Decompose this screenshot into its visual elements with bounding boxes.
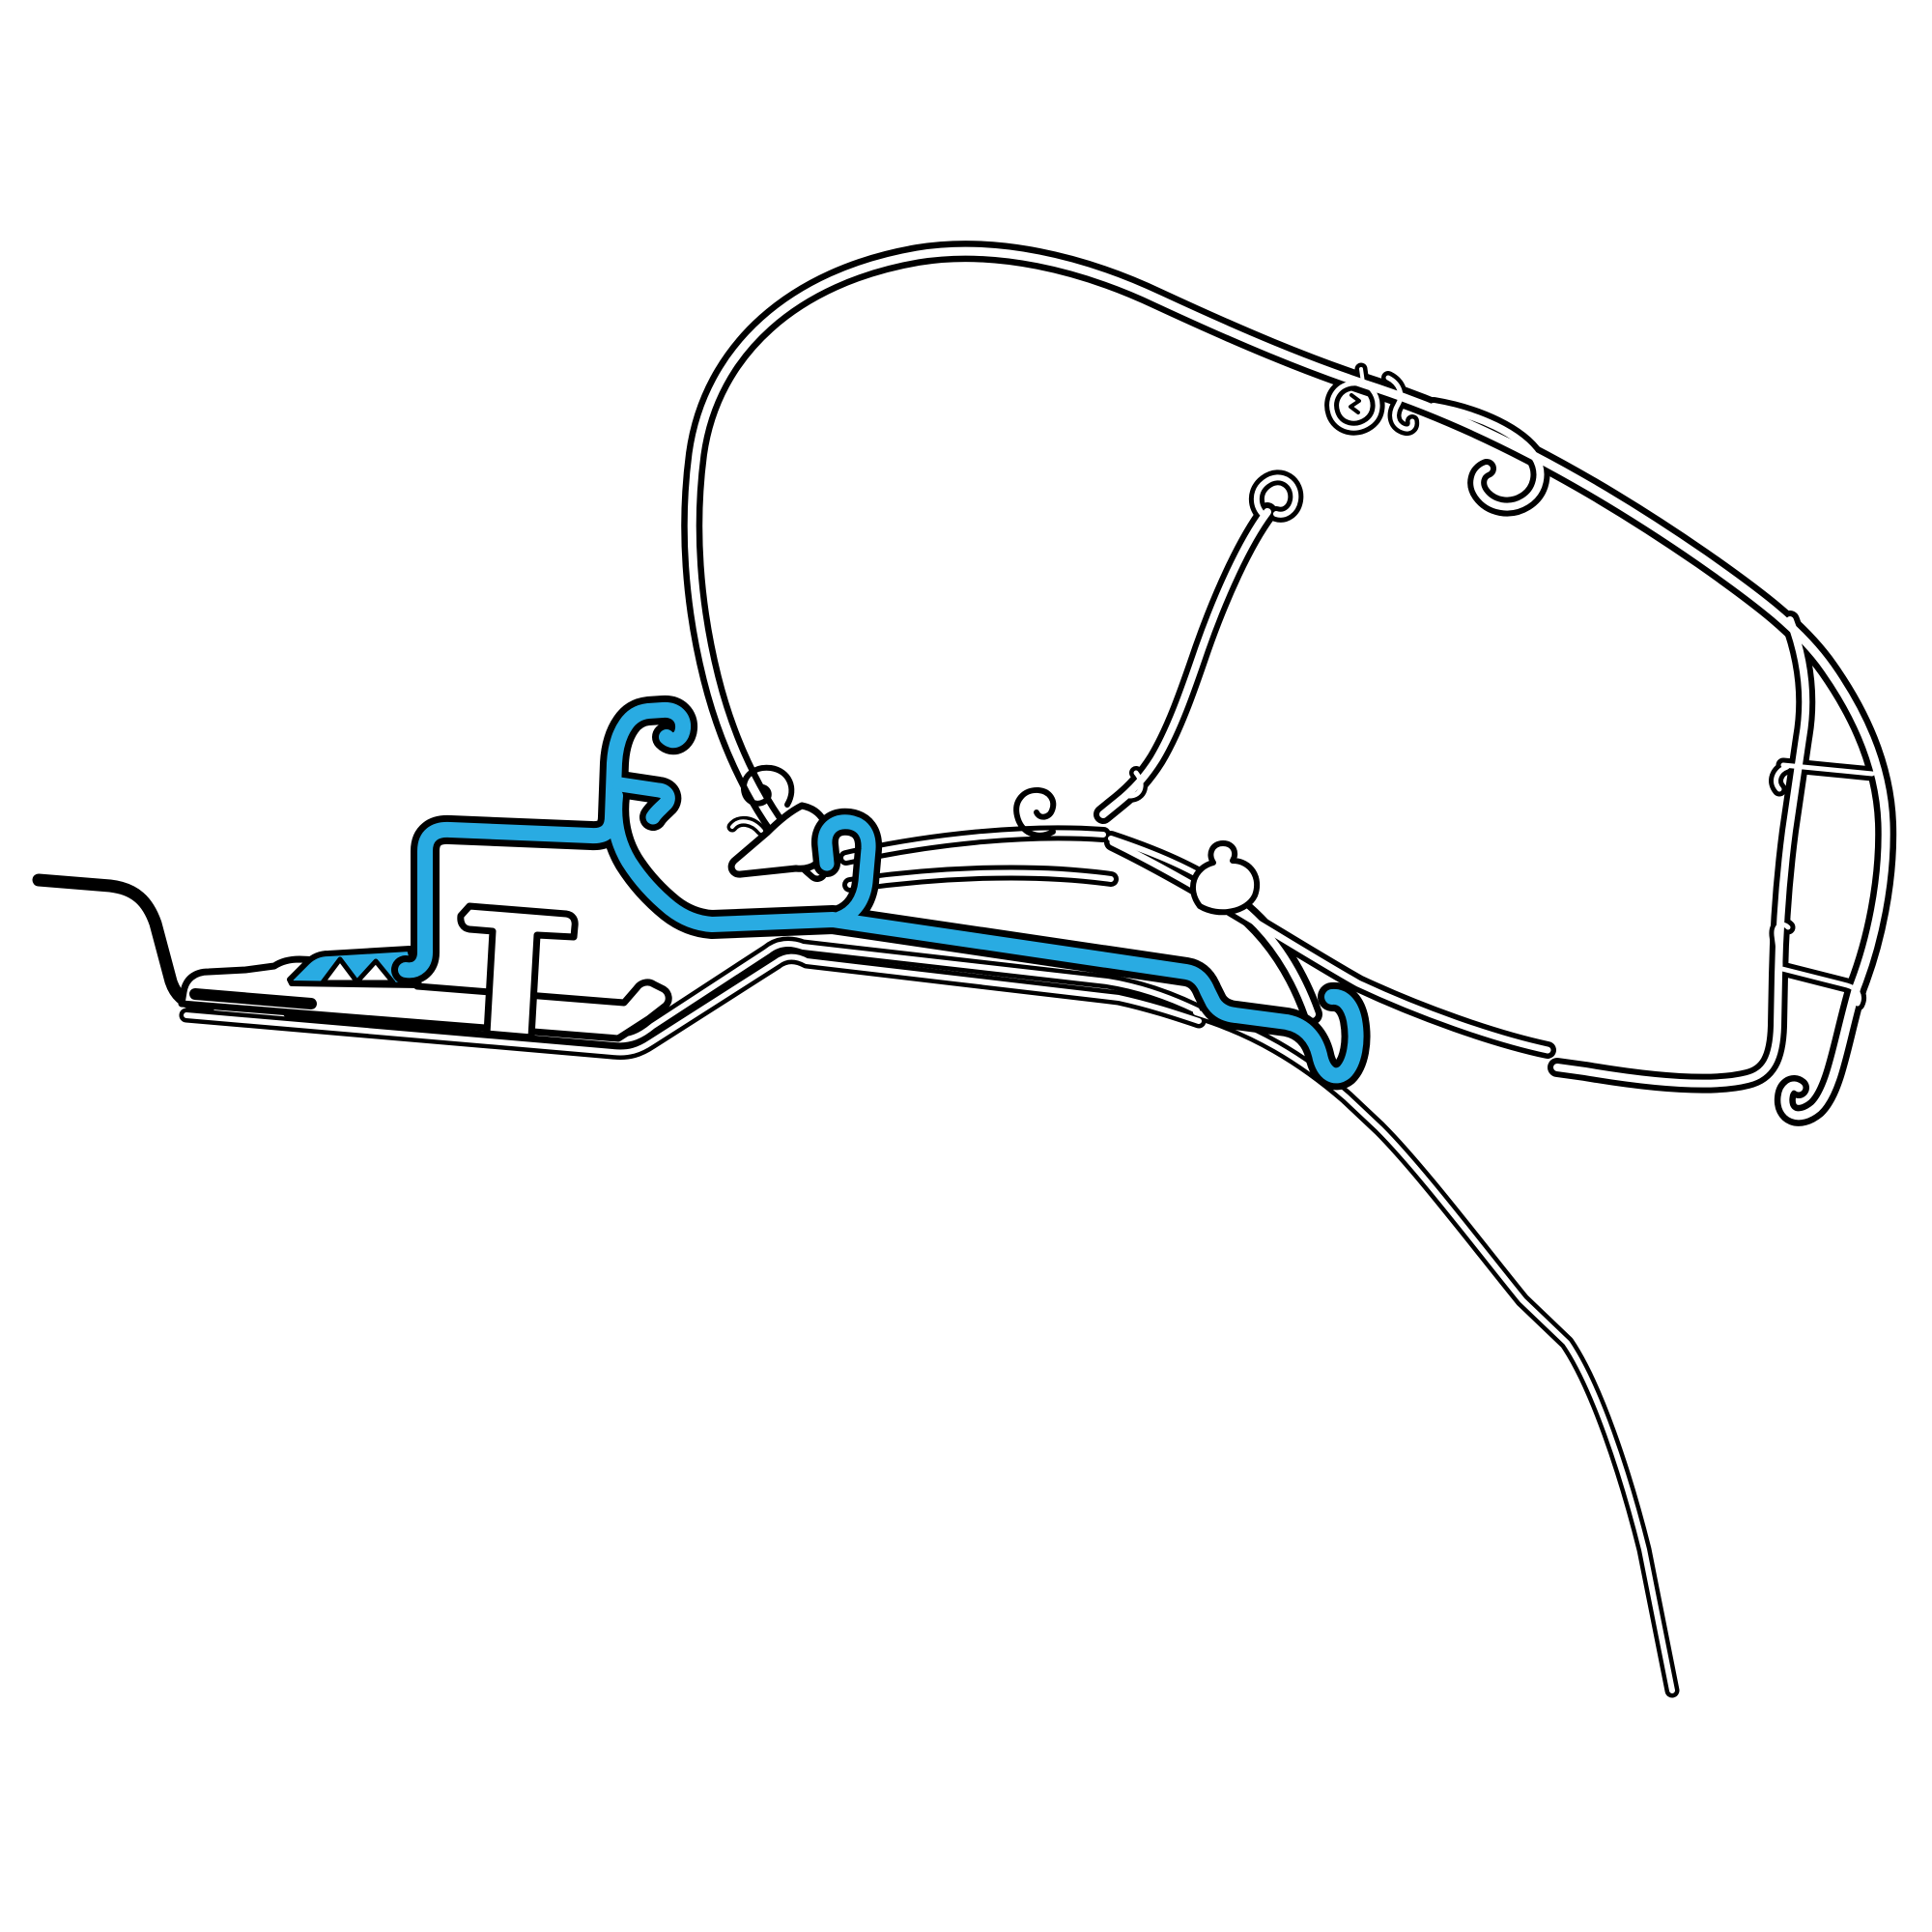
roof-sheet-diagonal — [1196, 1012, 1672, 1690]
diagram-canvas — [0, 0, 1932, 1932]
case-right-inner-wall-outline — [1557, 620, 1805, 1084]
case-inner-arm — [1103, 512, 1267, 814]
clip-ring-teeth-detail — [1350, 395, 1359, 412]
case-knob-ornament — [1193, 843, 1257, 912]
case-top-clip-neck — [1361, 369, 1363, 383]
diagram-stage — [0, 0, 1932, 1932]
roof-sheet-diagonal-outline — [1196, 1012, 1672, 1690]
